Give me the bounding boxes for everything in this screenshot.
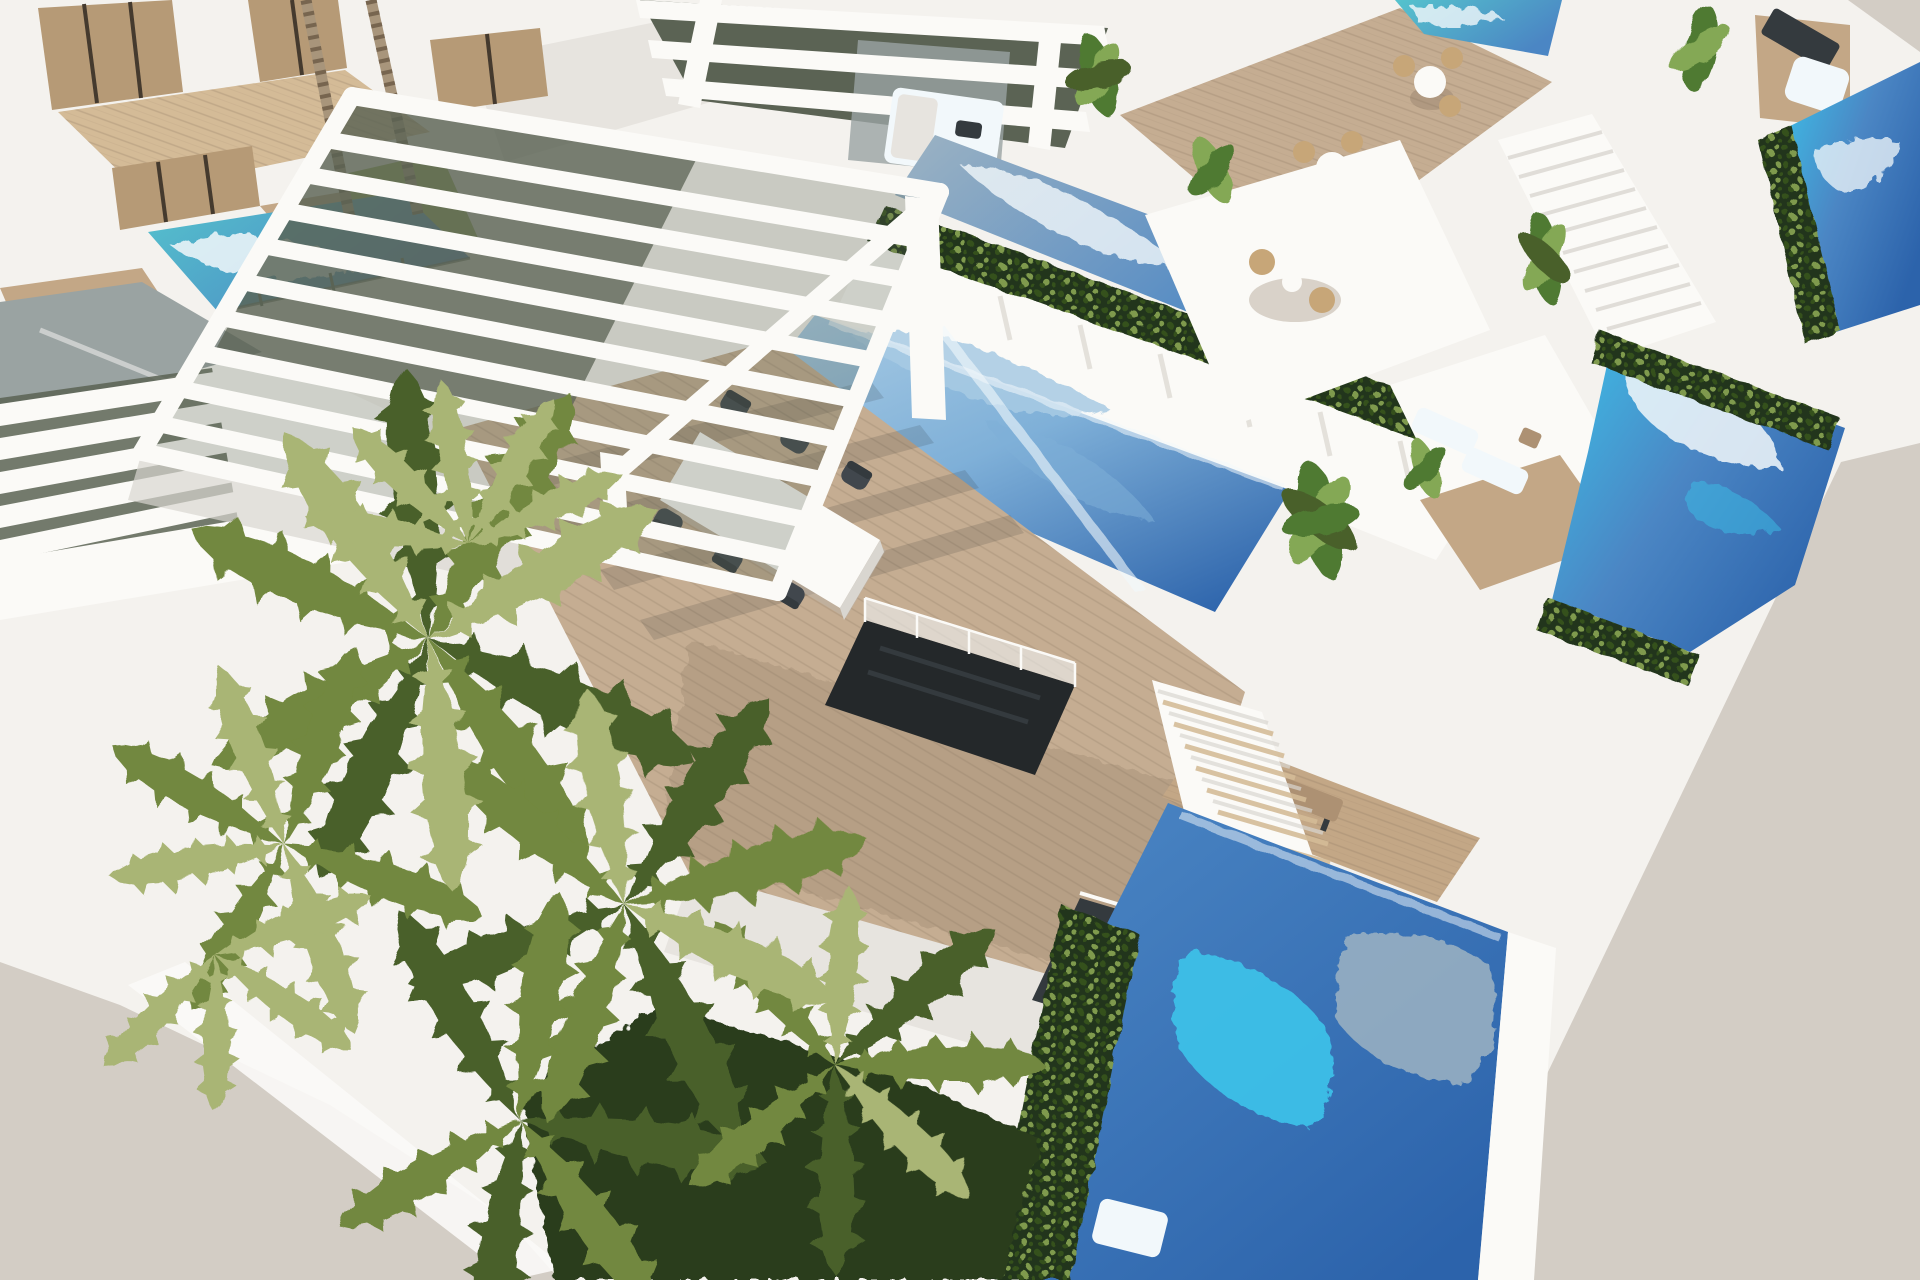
- dark-steps: [1032, 893, 1205, 1038]
- hedge-border: [988, 905, 1140, 1280]
- pool-foam: [960, 165, 1180, 267]
- hedge: [1536, 598, 1700, 686]
- mini-pergola-slats: [0, 372, 238, 562]
- wood-strip: [0, 268, 158, 316]
- aerial-villa-render: [0, 0, 1920, 1280]
- dining-chair: [838, 459, 873, 492]
- ground-bottom-left: [0, 962, 560, 1280]
- plant: [1062, 30, 1134, 119]
- dining-chair: [710, 541, 745, 574]
- mullion: [205, 155, 213, 214]
- cyan-patch: [1172, 950, 1333, 1130]
- pool-lounger: [1090, 1197, 1169, 1259]
- plant: [1181, 131, 1242, 208]
- hedge: [1590, 330, 1840, 450]
- staircase-right: [1498, 114, 1716, 358]
- pergola-frame: [142, 96, 940, 592]
- water-reflection: [850, 331, 1110, 415]
- pergola-post: [600, 452, 630, 560]
- wood-deck-upper: [58, 70, 430, 192]
- pool-right-mid: [1536, 330, 1845, 686]
- glass-doors-lower: [112, 146, 260, 230]
- pool-upper-right: [1395, 0, 1562, 56]
- mullion: [158, 162, 166, 222]
- water-reflection: [985, 420, 1155, 522]
- hanging-chair: [1782, 54, 1851, 116]
- round-table-set: [1393, 47, 1463, 117]
- shaded-garden: [640, 0, 1108, 148]
- palm-shadow: [660, 640, 1200, 990]
- lawn-left: [0, 332, 64, 422]
- pool-foam: [1412, 6, 1502, 26]
- wood-deck-tables: [1120, 8, 1552, 268]
- ground-plane: [0, 0, 1920, 1280]
- pool-right-upper: [1786, 62, 1920, 332]
- right-middle: [1145, 114, 1845, 686]
- reflection-patch: [1337, 933, 1496, 1085]
- hedge: [1758, 126, 1840, 345]
- pergola-slats: [157, 132, 924, 568]
- wall-drips: [920, 268, 1410, 485]
- glass-doors: [248, 0, 347, 82]
- sun-lounger: [1410, 406, 1481, 457]
- glass-railing: [865, 598, 1075, 685]
- palm-canopy: [88, 365, 1045, 1280]
- pool-water: [1035, 803, 1508, 1280]
- dining-chair: [650, 505, 685, 538]
- pergola-shade: [142, 96, 940, 592]
- round-table-set: [1293, 131, 1363, 203]
- pool-water: [742, 315, 1290, 612]
- deck-planks: [460, 340, 1245, 1005]
- plant: [1397, 434, 1452, 502]
- edge-foam: [830, 322, 1285, 488]
- garden-dark: [520, 1005, 1040, 1280]
- lounge-terrace: [1390, 335, 1640, 590]
- top-center-villa: [636, 0, 1108, 178]
- sun-lounger: [1460, 446, 1531, 497]
- potted-plants: [1062, 2, 1737, 583]
- pool-foam: [1174, 240, 1275, 290]
- wall-shade-band: [128, 452, 778, 640]
- slat-shadows: [520, 380, 1024, 640]
- dining-set: [650, 388, 886, 620]
- pergola-post: [905, 196, 946, 420]
- terrace-white: [1145, 140, 1490, 425]
- hedge-row: [868, 205, 1500, 462]
- mini-pergola-shade: [0, 368, 238, 560]
- staircase-main: [1152, 680, 1330, 942]
- plant-large: [1274, 457, 1366, 583]
- grey-terrace: [0, 282, 262, 432]
- mullion: [130, 2, 141, 98]
- table-edge: [840, 540, 884, 620]
- render-canvas: [0, 0, 1920, 1280]
- wood-bench: [1272, 777, 1345, 834]
- pool-main: [742, 315, 1290, 612]
- pergola-main: [142, 96, 946, 592]
- right-top-terraces: [1120, 0, 1920, 345]
- pergola-dark-gaps: [210, 96, 700, 430]
- wicker-seating: [1249, 249, 1341, 322]
- railing: [1080, 893, 1205, 930]
- ground-right: [1448, 443, 1920, 1280]
- deck-planks: [1162, 733, 1480, 902]
- pool-upper-center: [895, 135, 1330, 352]
- roof-shadow: [470, 12, 745, 162]
- pool-foam: [170, 234, 360, 279]
- pergola-beams: [636, 0, 1108, 150]
- deck-planks: [58, 70, 430, 192]
- terrace-reflection: [40, 330, 200, 395]
- shade-panel: [1760, 7, 1841, 71]
- white-garden-wall-edge: [128, 962, 565, 1280]
- dining-chair: [777, 423, 812, 456]
- mullion: [84, 4, 97, 103]
- fence-post: [402, 258, 406, 276]
- edge-foam: [1180, 815, 1500, 938]
- daybed: [883, 87, 1004, 178]
- palm-fronds-light: [88, 376, 989, 1218]
- lawn: [340, 152, 478, 268]
- glass-doors: [38, 0, 183, 110]
- wall-face: [832, 242, 1500, 560]
- dining-table: [660, 432, 880, 608]
- pool-foam: [1815, 138, 1900, 194]
- palm-trunks: [306, 0, 418, 228]
- plant: [1663, 2, 1737, 94]
- left-walls: [0, 352, 778, 640]
- ground-top-right: [1848, 0, 1920, 52]
- fence-post: [330, 273, 334, 291]
- roof-deck: [460, 340, 1245, 1005]
- white-wall: [0, 352, 430, 620]
- side-table: [1518, 427, 1543, 450]
- mullion: [292, 0, 302, 75]
- beam-reflection: [940, 328, 1140, 590]
- palm-fronds-dark: [286, 365, 1014, 1280]
- villa-top-left: [0, 0, 745, 432]
- stair-void: [825, 598, 1075, 775]
- table-shadow: [666, 442, 886, 618]
- white-wall-band: [664, 872, 1148, 1088]
- fence-post: [258, 288, 262, 306]
- pool-bottom-right: [988, 803, 1556, 1280]
- palm-fronds-mid: [97, 372, 1045, 1280]
- glass-doors: [430, 28, 548, 112]
- dining-chair: [772, 577, 807, 610]
- glass-fence: [218, 258, 470, 312]
- grey-paving: [848, 40, 1010, 175]
- wood-deck-small: [260, 192, 380, 252]
- dining-chair: [717, 388, 752, 421]
- wood-nook: [1755, 15, 1850, 128]
- hedge-wall: [832, 205, 1500, 560]
- mullion: [487, 34, 495, 104]
- plant: [1512, 210, 1577, 305]
- lower-level: [664, 680, 1480, 1088]
- pool-coping: [1478, 932, 1556, 1280]
- deck-planks: [1120, 8, 1552, 268]
- wood-deck: [460, 340, 1245, 1005]
- wood-deck-lower: [1162, 733, 1480, 902]
- white-architecture-base: [0, 0, 1920, 1280]
- pool-top-left: [148, 192, 470, 312]
